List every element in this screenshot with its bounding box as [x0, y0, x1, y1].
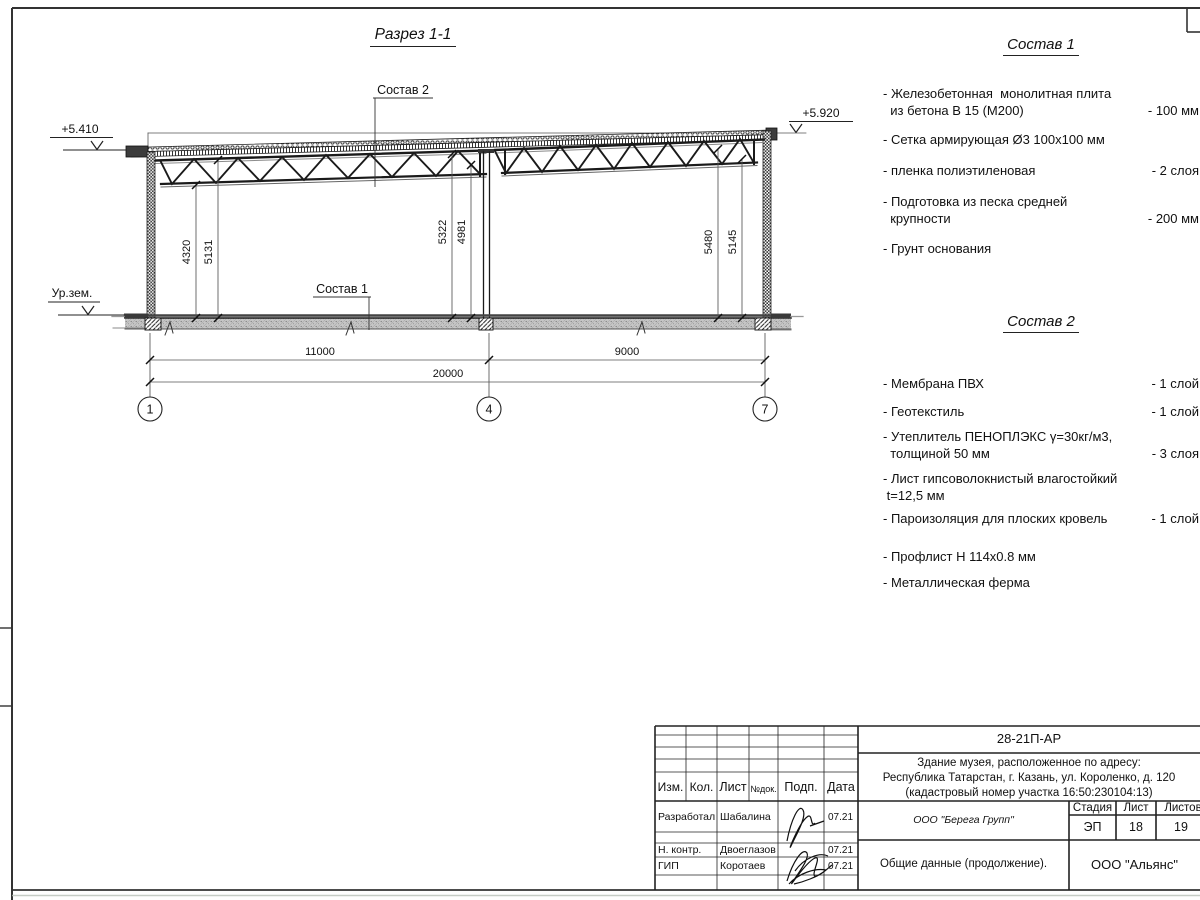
- composition-2-list: - Мембрана ПВХ- 1 слой - Геотекстиль- 1 …: [883, 375, 1199, 591]
- dim-4320: 4320: [181, 240, 193, 264]
- floor-slab: [112, 314, 803, 336]
- col-podp: Подп.: [778, 780, 824, 794]
- list-item: - Подготовка из песка средней крупности-…: [883, 193, 1199, 227]
- col-ndok: №док.: [749, 784, 778, 794]
- view-title-text: Разрез 1-1: [370, 26, 457, 47]
- list-item: - Геотекстиль- 1 слой: [883, 403, 1199, 420]
- row-role: Разработал: [658, 811, 715, 823]
- list-item: - Лист гипсоволокнистый влагостойкий t=1…: [883, 470, 1199, 504]
- stage-label: Стадия: [1069, 802, 1116, 814]
- composition-1-list: - Железобетонная монолитная плита из бет…: [883, 85, 1199, 257]
- col-list: Лист: [717, 780, 749, 794]
- signature-razrabotal: [787, 808, 824, 847]
- callout-sostav2: Состав 2: [377, 83, 429, 97]
- axis-bubbles: 1 4 7: [138, 397, 777, 421]
- col-kol: Кол.: [686, 780, 717, 794]
- dim-9000: 9000: [615, 346, 639, 358]
- elevation-left-label: +5.410: [61, 122, 98, 136]
- callout-sostav1: Состав 1: [316, 282, 368, 296]
- signature-nkontr-gip: [787, 852, 832, 884]
- col-data: Дата: [824, 780, 858, 794]
- list-item: - Металлическая ферма: [883, 574, 1199, 591]
- list-item: - пленка полиэтиленовая- 2 слоя: [883, 162, 1199, 179]
- dim-4981: 4981: [456, 220, 468, 244]
- list-item: - Мембрана ПВХ- 1 слой: [883, 375, 1199, 392]
- row-name: Шабалина: [720, 811, 771, 823]
- view-title: Разрез 1-1: [348, 26, 478, 47]
- elevation-left: [50, 138, 126, 151]
- composition-2-panel: Состав 2 - Мембрана ПВХ- 1 слой - Геотек…: [883, 313, 1199, 591]
- dim-5322: 5322: [437, 220, 449, 244]
- sheet-label: Лист: [1116, 802, 1156, 814]
- list-item: - Профлист Н 114х0.8 мм: [883, 548, 1199, 565]
- roof-left-cap: [126, 146, 148, 157]
- floor-right-edge: [771, 314, 791, 319]
- list-item: - Сетка армирующая Ø3 100х100 мм: [883, 131, 1199, 148]
- row-role: Н. контр.: [658, 844, 701, 856]
- contractor-org: ООО "Берега Групп": [860, 814, 1067, 826]
- floor-left-edge: [124, 314, 148, 319]
- axis-7: 7: [762, 403, 769, 417]
- elevation-right-label: +5.920: [802, 106, 839, 120]
- object-description: Здание музея, расположенное по адресу: Р…: [862, 756, 1196, 801]
- stage-value: ЭП: [1069, 820, 1116, 834]
- elevation-right: [789, 122, 853, 133]
- list-item: - Железобетонная монолитная плита из бет…: [883, 85, 1199, 119]
- left-wall: [147, 152, 155, 318]
- composition-1-panel: Состав 1 - Железобетонная монолитная пли…: [883, 36, 1199, 257]
- dim-5480: 5480: [703, 230, 715, 254]
- row-name: Двоеглазов: [720, 844, 776, 856]
- main-org: ООО "Альянс": [1069, 857, 1200, 872]
- list-item: - Утеплитель ПЕНОПЛЭКС γ=30кг/м3, толщин…: [883, 428, 1199, 462]
- col-izm: Изм.: [655, 780, 686, 794]
- composition-2-heading: Состав 2: [883, 313, 1199, 333]
- horizontal-dimensions: 11000 9000 20000 1 4 7: [138, 333, 777, 421]
- drawing-sheet: { "drawing": { "title": "Разрез 1-1", "c…: [0, 0, 1200, 900]
- axis-1: 1: [147, 403, 154, 417]
- dim-5131: 5131: [203, 240, 215, 264]
- row-date: 07.21: [828, 861, 853, 872]
- row-name: Коротаев: [720, 860, 765, 872]
- row-date: 07.21: [828, 812, 853, 823]
- sheet-value: 18: [1116, 820, 1156, 834]
- composition-1-heading: Состав 1: [883, 36, 1199, 56]
- ground-level-label: Ур.зем.: [52, 286, 93, 300]
- row-role: ГИП: [658, 860, 679, 872]
- sheets-label: Листов: [1158, 802, 1200, 814]
- vertical-dimensions: 4320 5131 5322 4981 5480 5145: [181, 145, 746, 322]
- axis-4: 4: [486, 403, 493, 417]
- truss-left: [156, 151, 486, 188]
- right-wall: [763, 131, 771, 318]
- signatures: [787, 808, 832, 884]
- list-item: - Пароизоляция для плоских кровель- 1 сл…: [883, 510, 1199, 527]
- dim-5145: 5145: [727, 230, 739, 254]
- elevation-ground: [48, 302, 124, 315]
- list-item: - Грунт основания: [883, 240, 1199, 257]
- dim-11000: 11000: [305, 346, 335, 358]
- document-code: 28-21П-АР: [858, 731, 1200, 746]
- row-date: 07.21: [828, 845, 853, 856]
- dim-20000: 20000: [433, 368, 464, 380]
- sheets-value: 19: [1158, 820, 1200, 834]
- doc-title: Общие данные (продолжение).: [860, 858, 1067, 870]
